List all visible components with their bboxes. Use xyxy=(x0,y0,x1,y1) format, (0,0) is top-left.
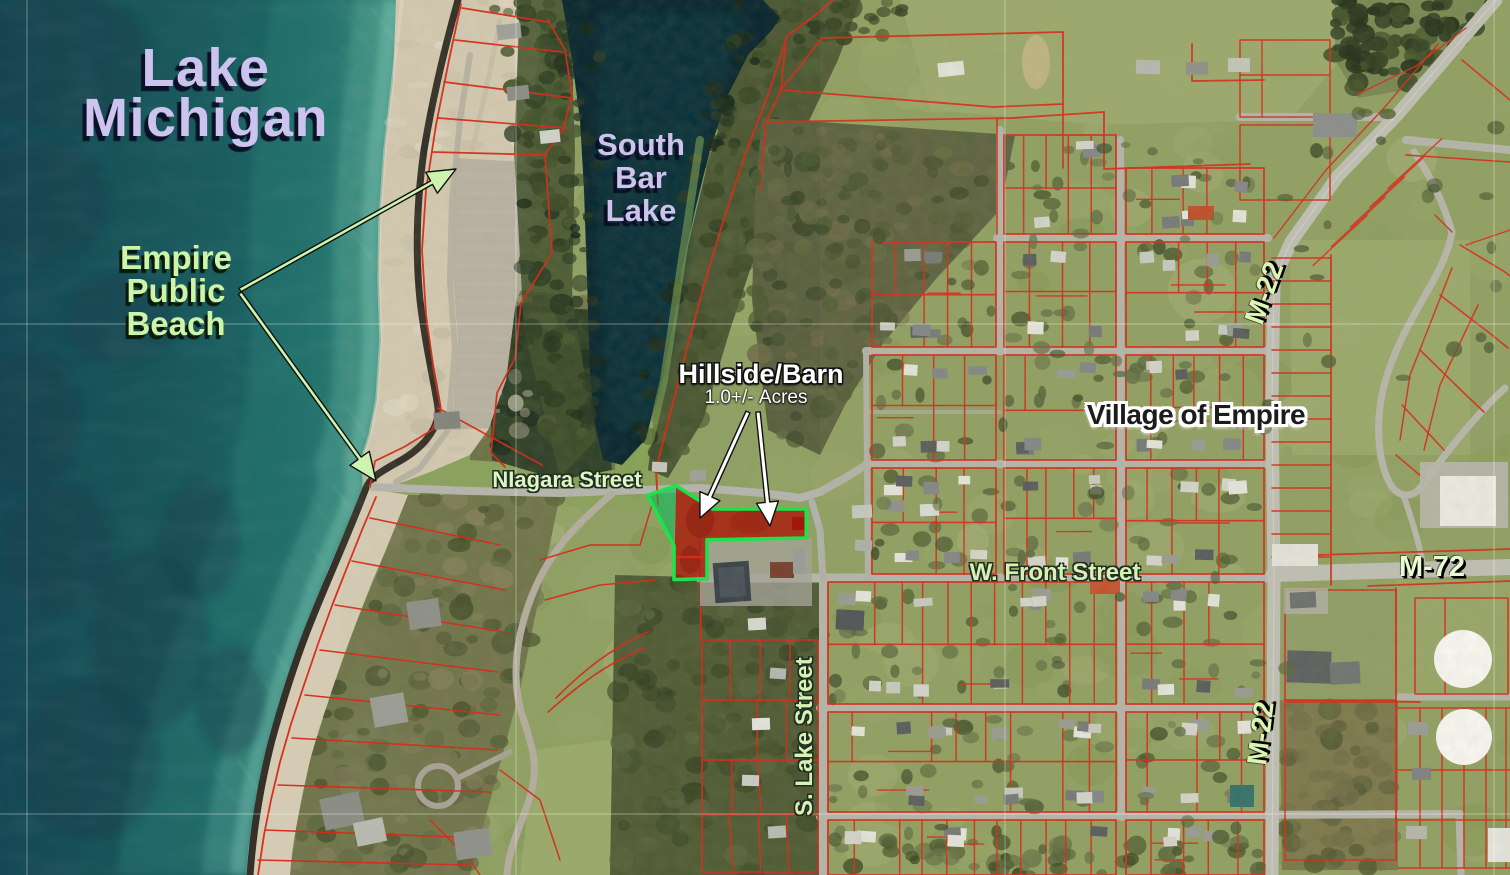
svg-text:1.0+/- Acres: 1.0+/- Acres xyxy=(705,387,808,408)
svg-text:NIagara Street: NIagara Street xyxy=(492,467,642,492)
svg-text:Village of Empire: Village of Empire xyxy=(1087,399,1305,430)
svg-text:South: South xyxy=(597,127,685,162)
svg-text:M-72: M-72 xyxy=(1399,551,1465,583)
svg-text:Hillside/Barn: Hillside/Barn xyxy=(678,359,843,389)
svg-text:S. Lake Street: S. Lake Street xyxy=(791,657,818,816)
svg-text:Beach: Beach xyxy=(126,305,225,342)
svg-text:W. Front Street: W. Front Street xyxy=(970,559,1141,586)
svg-text:Empire: Empire xyxy=(120,239,232,276)
svg-text:Michigan: Michigan xyxy=(83,88,329,148)
svg-text:Public: Public xyxy=(126,272,225,309)
svg-text:Bar: Bar xyxy=(615,160,667,195)
svg-text:Lake: Lake xyxy=(606,193,677,228)
